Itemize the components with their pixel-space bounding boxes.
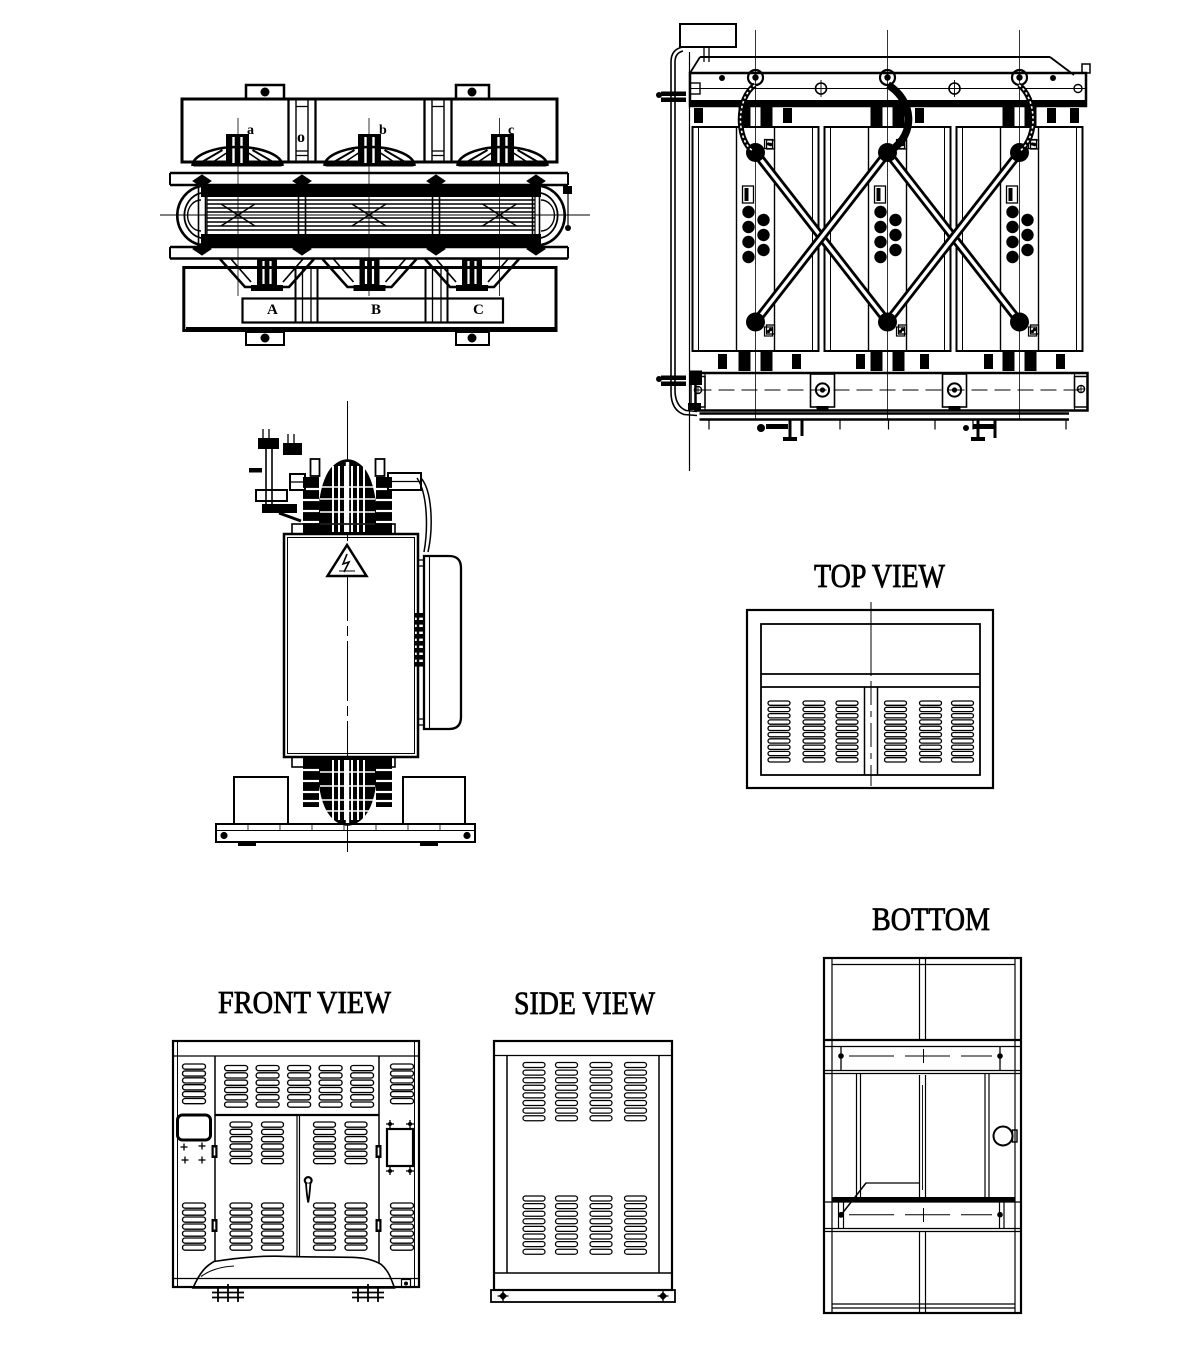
svg-text:o: o <box>297 129 305 146</box>
svg-text:C: C <box>473 302 484 318</box>
svg-text:B: B <box>371 302 381 318</box>
svg-text:BOTTOM: BOTTOM <box>872 902 990 938</box>
svg-text:FRONT VIEW: FRONT VIEW <box>218 985 391 1020</box>
svg-text:A: A <box>267 302 278 318</box>
svg-text:SIDE VIEW: SIDE VIEW <box>514 986 656 1022</box>
svg-text:TOP VIEW: TOP VIEW <box>814 558 946 595</box>
